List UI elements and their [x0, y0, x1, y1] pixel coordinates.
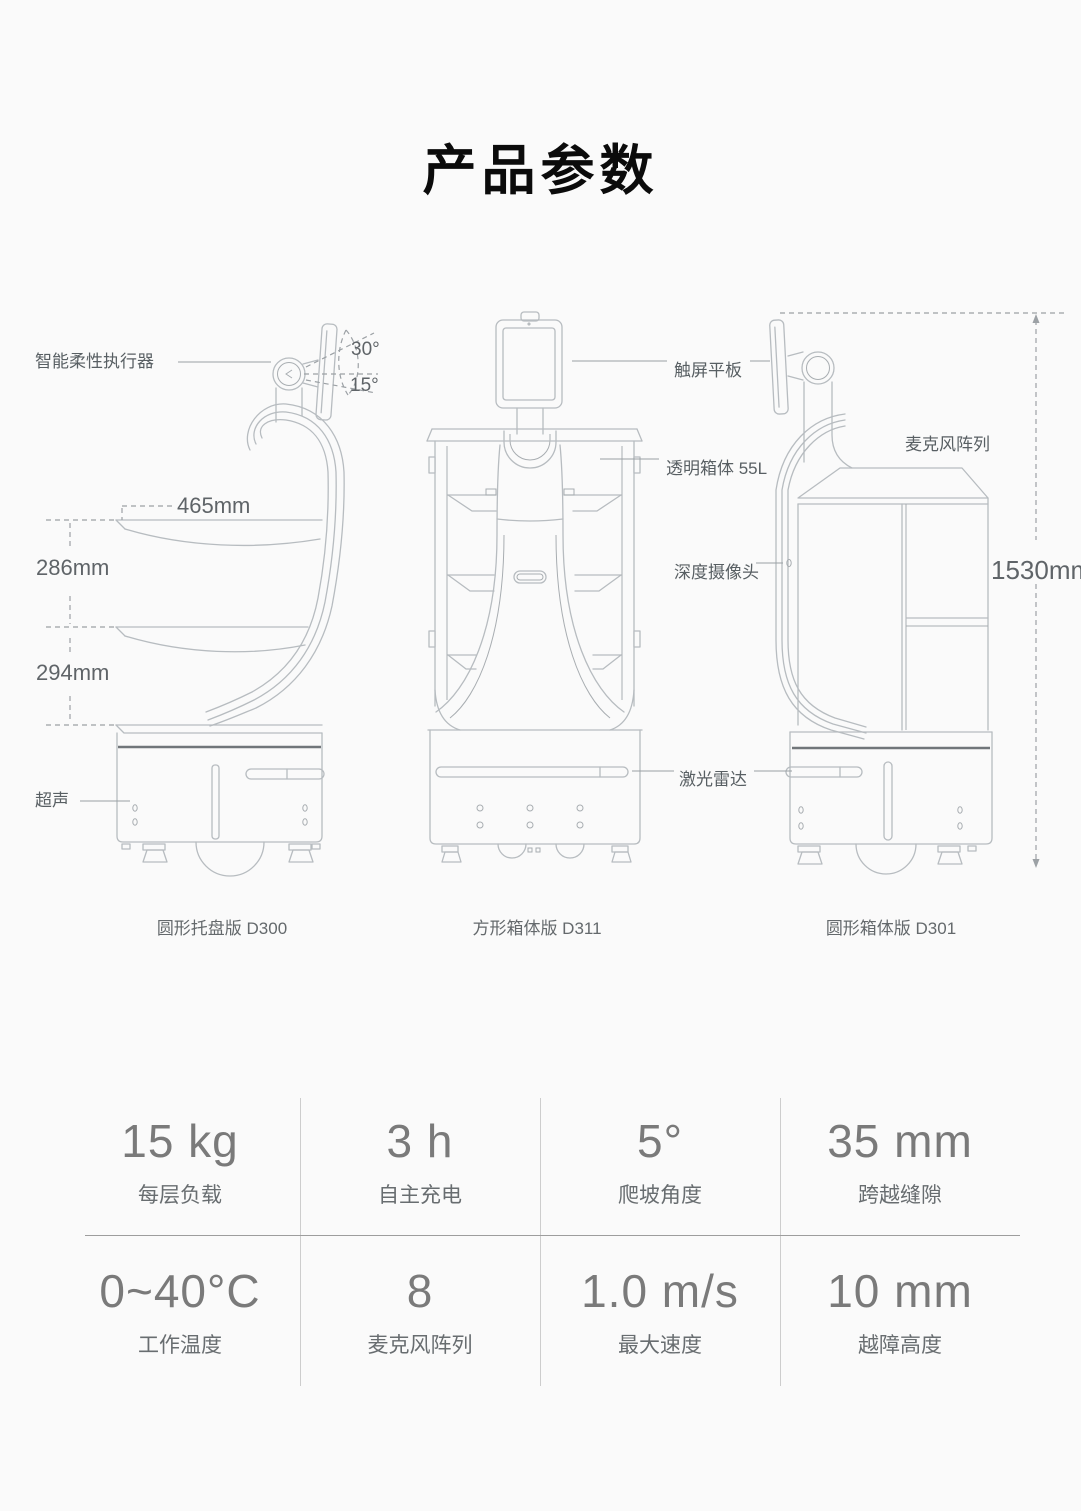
spec-climb-angle: 5° 爬坡角度 [540, 1090, 780, 1235]
label-touchscreen: 触屏平板 [674, 361, 742, 381]
d300-dimension-lines [46, 506, 174, 725]
robot-line-art [0, 295, 1081, 955]
grid-divider-vertical-2 [540, 1098, 541, 1386]
label-dim-465mm: 465mm [177, 494, 250, 518]
caption-d311: 方形箱体版 D311 [472, 914, 601, 939]
spec-mic-array: 8 麦克风阵列 [300, 1235, 540, 1390]
spec-max-speed-value: 1.0 m/s [581, 1266, 739, 1317]
spec-gap-crossing-label: 跨越缝隙 [858, 1179, 942, 1209]
spec-mic-array-label: 麦克风阵列 [368, 1329, 473, 1359]
d301-box-body [798, 468, 988, 730]
label-angle-15: 15° [350, 375, 379, 396]
page-title: 产品参数 [0, 126, 1081, 205]
grid-divider-vertical-3 [780, 1098, 781, 1386]
d301-tablet [769, 320, 788, 415]
d301-height-dimension [780, 313, 1068, 868]
robot-d301-drawing [769, 313, 1068, 874]
label-smart-actuator: 智能柔性执行器 [35, 352, 154, 372]
label-ultrasonic: 超声 [35, 791, 69, 811]
spec-payload-value: 15 kg [121, 1116, 239, 1167]
spec-payload: 15 kg 每层负载 [60, 1090, 300, 1235]
grid-divider-horizontal [85, 1235, 1020, 1236]
spec-climb-angle-value: 5° [637, 1116, 683, 1167]
spec-charging-label: 自主充电 [378, 1179, 462, 1209]
label-depth-camera: 深度摄像头 [674, 563, 759, 583]
grid-divider-vertical-1 [300, 1098, 301, 1386]
spec-temperature: 0~40°C 工作温度 [60, 1235, 300, 1390]
spec-obstacle-height: 10 mm 越障高度 [780, 1235, 1020, 1390]
caption-d301: 圆形箱体版 D301 [826, 914, 956, 939]
label-dim-294mm: 294mm [36, 661, 109, 685]
label-transparent-box: 透明箱体 55L [666, 459, 767, 479]
d300-tray-2 [116, 627, 308, 652]
robot-d300-drawing [46, 324, 378, 876]
spec-payload-label: 每层负载 [138, 1179, 222, 1209]
spec-max-speed: 1.0 m/s 最大速度 [540, 1235, 780, 1390]
label-angle-30: 30° [351, 339, 380, 360]
d300-tray-1 [116, 520, 322, 545]
spec-obstacle-height-label: 越障高度 [858, 1329, 942, 1359]
spec-max-speed-label: 最大速度 [618, 1329, 702, 1359]
label-mic-array: 麦克风阵列 [905, 435, 990, 455]
label-lidar: 激光雷达 [679, 770, 747, 790]
spec-grid: 15 kg 每层负载 3 h 自主充电 5° 爬坡角度 35 mm 跨越缝隙 0… [60, 1090, 1020, 1390]
d311-base [428, 730, 642, 862]
spec-gap-crossing: 35 mm 跨越缝隙 [780, 1090, 1020, 1235]
d300-base [116, 725, 324, 876]
spec-charging-value: 3 h [387, 1116, 454, 1167]
spec-charging: 3 h 自主充电 [300, 1090, 540, 1235]
d311-tablet [496, 312, 562, 408]
d311-shelves [448, 489, 621, 669]
label-dim-286mm: 286mm [36, 556, 109, 580]
spec-climb-angle-label: 爬坡角度 [618, 1179, 702, 1209]
product-spec-sheet: { "page": { "title": "产品参数" }, "diagram"… [0, 0, 1081, 1511]
spec-temperature-value: 0~40°C [99, 1266, 260, 1317]
label-dim-1530mm: 1530mm [991, 556, 1081, 584]
caption-d300: 圆形托盘版 D300 [157, 914, 287, 939]
robot-d311-drawing [427, 312, 642, 862]
spec-obstacle-height-value: 10 mm [827, 1266, 973, 1317]
d301-base [786, 732, 992, 874]
robot-diagram: 智能柔性执行器 30° 15° 465mm 286mm 294mm 超声 触屏平… [0, 295, 1081, 955]
spec-gap-crossing-value: 35 mm [827, 1116, 973, 1167]
spec-mic-array-value: 8 [407, 1266, 434, 1317]
spec-temperature-label: 工作温度 [138, 1329, 222, 1359]
d300-tablet [316, 324, 338, 421]
